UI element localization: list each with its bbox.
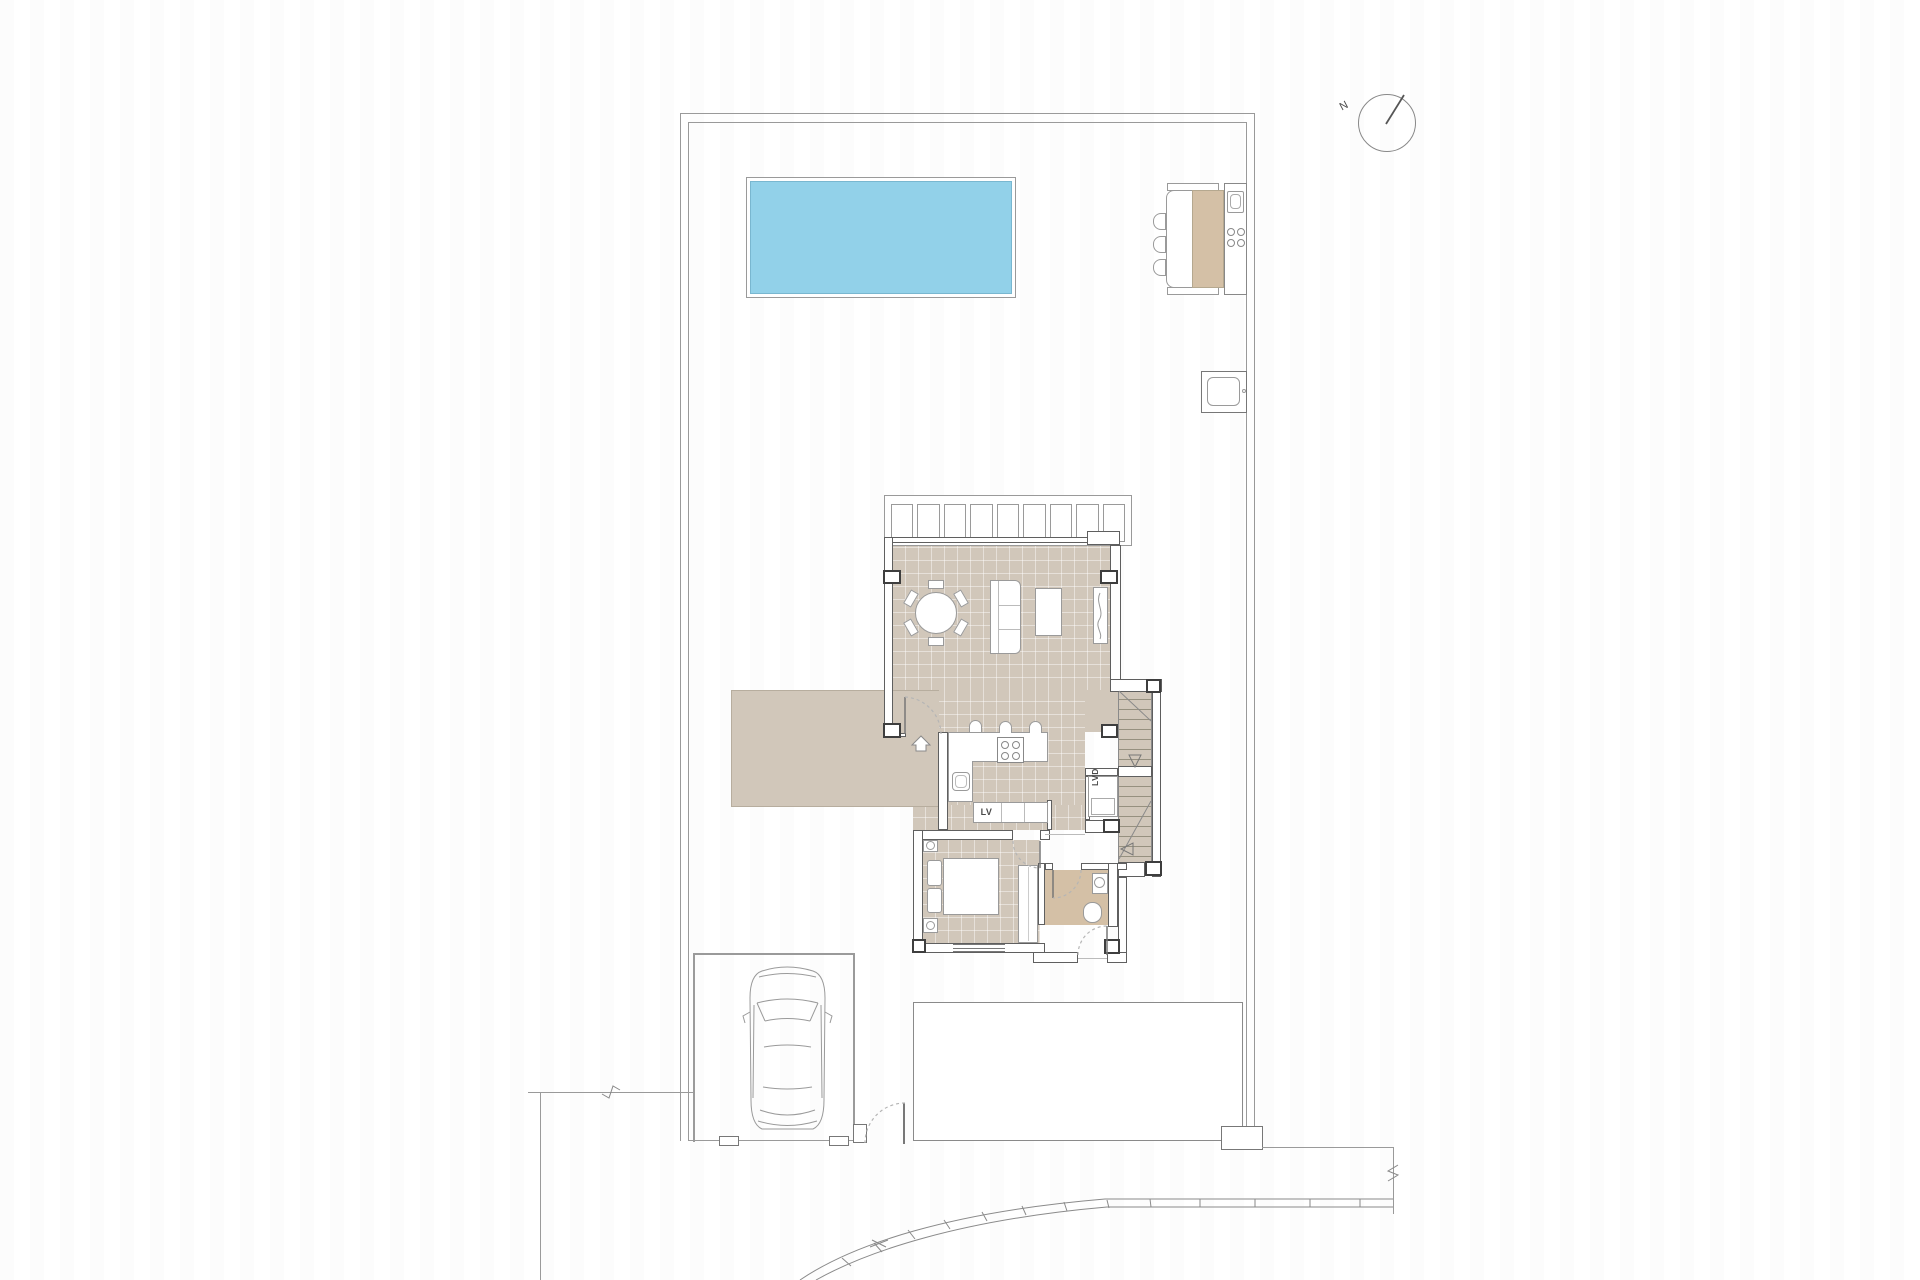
- compass-needle: [1386, 95, 1404, 124]
- break-symbol-left: [602, 1086, 620, 1098]
- car-windshield-bottom: [765, 1019, 810, 1022]
- sideboard-decor: [1098, 593, 1101, 639]
- door-arc-bedroom: [1013, 841, 1040, 868]
- stair-diagonal-upper: [1119, 691, 1151, 721]
- entrance-arrow-icon: [912, 736, 930, 751]
- car-trunk-line: [760, 1110, 815, 1115]
- car-rear-window: [763, 1087, 812, 1089]
- stair-arrow-down-icon: [1129, 755, 1141, 767]
- car-roof-line: [764, 1045, 811, 1047]
- door-arc-gate: [865, 1103, 905, 1143]
- street-curb: [800, 1199, 1393, 1280]
- car: [743, 967, 832, 1129]
- car-body: [750, 967, 825, 1129]
- door-arc-bathroom: [1053, 870, 1081, 898]
- door-arc-porch: [905, 697, 941, 734]
- car-hood-line: [759, 974, 816, 978]
- car-mirrors: [743, 1012, 832, 1023]
- curb-upper-line: [800, 1199, 1393, 1280]
- break-symbol-right: [1388, 1165, 1398, 1181]
- car-windshield-top: [757, 999, 818, 1003]
- door-arc-entry: [1078, 926, 1107, 955]
- curb-x-mark: [870, 1240, 888, 1247]
- car-rear-edge: [758, 1121, 817, 1126]
- site-plan: N: [0, 0, 1920, 1280]
- curb-ticks: [842, 1199, 1360, 1266]
- linework-overlay: [0, 0, 1920, 1280]
- curb-lower-line: [816, 1207, 1393, 1280]
